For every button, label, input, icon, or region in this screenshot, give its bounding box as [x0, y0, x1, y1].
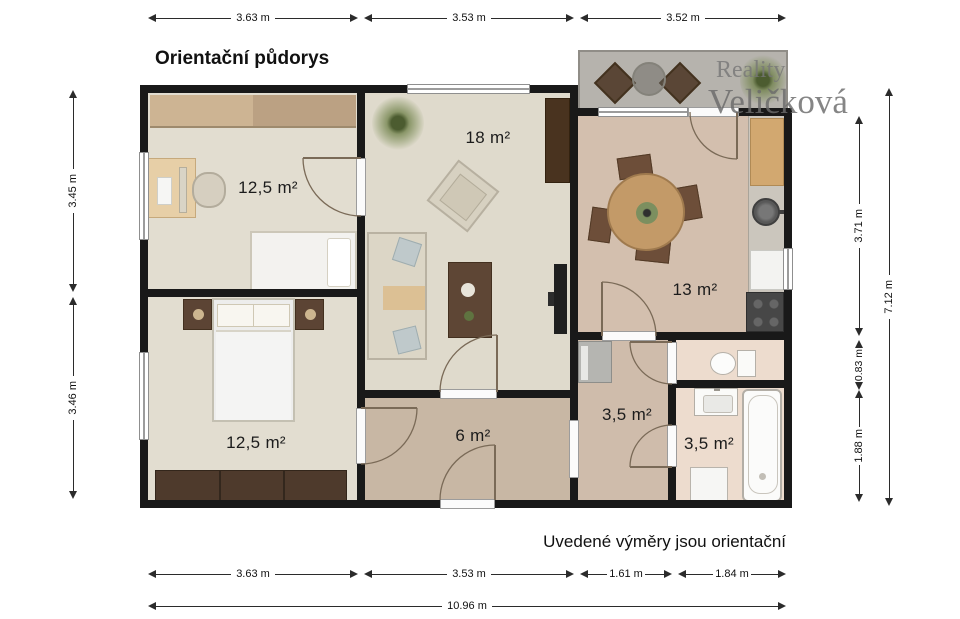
single-bed-pillow: [327, 238, 351, 287]
dim-line: [686, 574, 713, 575]
passage-hall-smallhall: [569, 420, 579, 478]
double-bed-pillow: [217, 304, 254, 327]
door-threshold-balcony: [688, 107, 739, 117]
dim-label: 3.52 m: [661, 12, 705, 24]
dim-line: [73, 305, 74, 376]
room-area-study: 12,5 m²: [238, 178, 298, 198]
dim-line: [73, 420, 74, 491]
room-area-kitchen: 13 m²: [673, 280, 718, 300]
balcony-table: [632, 62, 666, 96]
dim-arrow: [855, 382, 863, 390]
dim-line: [156, 18, 231, 19]
bathroom-cabinet: [690, 467, 728, 501]
sofa-pillow: [392, 325, 421, 354]
dim-arrow: [69, 90, 77, 98]
door-threshold-wc: [667, 342, 677, 384]
hallway-floor: [365, 398, 570, 500]
dim-line: [491, 574, 566, 575]
kitchen-appliance: [750, 250, 784, 290]
wardrobe-divider: [283, 471, 285, 501]
dim-right-1: 3.71 m: [852, 116, 866, 336]
dim-bottom-3: 1.61 m: [580, 567, 672, 581]
wall-kitchen-living: [570, 116, 578, 340]
dim-line: [275, 18, 350, 19]
dim-label: 3.45 m: [67, 169, 79, 213]
toilet-tank: [737, 350, 756, 377]
lamp-icon: [305, 309, 316, 320]
dim-arrow: [580, 14, 588, 22]
dim-label: 7.12 m: [883, 275, 895, 319]
toilet: [710, 352, 736, 375]
window-kitchen: [783, 248, 793, 290]
kitchen-tall-cabinet: [750, 118, 784, 186]
balcony-plant-icon: [740, 54, 786, 106]
dim-arrow: [350, 570, 358, 578]
dim-label: 1.84 m: [713, 568, 751, 580]
dim-arrow: [855, 494, 863, 502]
dim-arrow: [148, 602, 156, 610]
floor-plan-page: 12,5 m² 18 m² 13 m² 12,5 m² 6 m² 3,5 m² …: [0, 0, 960, 619]
dim-line: [705, 18, 778, 19]
sofa: [367, 232, 427, 360]
dim-arrow: [855, 390, 863, 398]
dim-line: [73, 213, 74, 284]
wall-join-living-kitchen: [570, 85, 578, 116]
tv: [554, 264, 567, 334]
dim-arrow: [148, 570, 156, 578]
dim-line: [492, 606, 778, 607]
window-living: [407, 84, 530, 94]
dim-right-total: 7.12 m: [882, 88, 896, 506]
room-area-hall: 6 m²: [455, 426, 490, 446]
window-balcony: [598, 107, 688, 117]
sink-bowl: [703, 395, 733, 413]
dim-top-2: 3.53 m: [364, 11, 574, 25]
dim-arrow: [885, 88, 893, 96]
dim-arrow: [364, 570, 372, 578]
wall-study-bedroom: [140, 289, 365, 297]
coffee-table: [448, 262, 492, 338]
dim-arrow: [69, 284, 77, 292]
room-area-living: 18 m²: [466, 128, 511, 148]
dim-bottom-total: 10.96 m: [148, 599, 786, 613]
dim-line: [372, 574, 447, 575]
dim-line: [588, 18, 661, 19]
dim-label: 3.53 m: [447, 568, 491, 580]
dim-arrow: [148, 14, 156, 22]
window-bedroom: [139, 352, 149, 440]
dim-arrow: [885, 498, 893, 506]
double-bed-pillow: [253, 304, 290, 327]
table-centerpiece-icon: [636, 202, 658, 224]
disclaimer-note: Uvedené výměry jsou orientační: [430, 532, 786, 552]
dim-line: [751, 574, 778, 575]
lamp-icon: [193, 309, 204, 320]
dim-arrow: [855, 116, 863, 124]
dim-arrow: [364, 14, 372, 22]
washing-machine: [578, 341, 612, 383]
dim-line: [275, 574, 350, 575]
bathroom-sink: [694, 388, 738, 416]
dim-line: [889, 96, 890, 275]
study-wardrobe: [150, 95, 356, 128]
armchair-cushion: [439, 174, 487, 222]
dim-arrow: [855, 340, 863, 348]
room-area-bedroom: 12,5 m²: [226, 433, 286, 453]
dim-line: [73, 98, 74, 169]
dim-label: 1.88 m: [853, 427, 865, 465]
room-area-small-hall: 3,5 m²: [602, 405, 652, 425]
dim-arrow: [855, 328, 863, 336]
dim-line: [156, 574, 231, 575]
sofa-throw: [383, 286, 425, 310]
dim-line: [645, 574, 664, 575]
dim-label: 10.96 m: [442, 600, 492, 612]
dim-line: [859, 465, 860, 494]
dim-arrow: [69, 491, 77, 499]
dim-arrow: [566, 14, 574, 22]
sideboard: [545, 98, 570, 183]
coffee-table-plant-icon: [464, 311, 474, 321]
dim-top-3: 3.52 m: [580, 11, 786, 25]
wall-wc-bath: [668, 380, 792, 388]
room-area-bathroom: 3,5 m²: [684, 434, 734, 454]
dim-bottom-2: 3.53 m: [364, 567, 574, 581]
bathtub: [742, 389, 782, 502]
dining-table: [607, 173, 685, 251]
dim-line: [859, 124, 860, 204]
dim-label: 3.46 m: [67, 376, 79, 420]
desk-papers: [157, 177, 172, 205]
living-plant-icon: [372, 96, 424, 150]
desk-chair: [192, 172, 226, 208]
dim-bottom-4: 1.84 m: [678, 567, 786, 581]
door-threshold-kitchen: [602, 331, 656, 341]
dim-top-1: 3.63 m: [148, 11, 358, 25]
dim-line: [372, 18, 447, 19]
stove: [746, 292, 784, 332]
dim-line: [889, 319, 890, 498]
washing-machine-door: [581, 346, 588, 380]
wardrobe-divider: [219, 471, 221, 501]
nightstand: [183, 299, 212, 330]
dim-line: [491, 18, 566, 19]
tv-stand: [548, 292, 554, 306]
dim-label: 3.53 m: [447, 12, 491, 24]
double-bed: [212, 298, 295, 422]
door-threshold-living-hall: [440, 389, 497, 399]
dim-arrow: [664, 570, 672, 578]
dim-arrow: [69, 297, 77, 305]
dim-label: 3.63 m: [231, 568, 275, 580]
dim-left-1: 3.45 m: [66, 90, 80, 292]
dim-label: 0.83 m: [853, 348, 865, 382]
door-threshold-bedroom: [356, 408, 366, 464]
desk: [148, 158, 196, 218]
drain-icon: [759, 473, 766, 480]
desk-monitor: [179, 167, 187, 213]
door-threshold-study: [356, 158, 366, 216]
dim-arrow: [566, 570, 574, 578]
page-title: Orientační půdorys: [155, 48, 329, 70]
dim-label: 3.63 m: [231, 12, 275, 24]
single-bed: [250, 231, 357, 294]
dim-label: 3.71 m: [853, 204, 865, 248]
kitchen-sink: [752, 198, 780, 226]
wall-right: [784, 108, 792, 508]
dim-arrow: [778, 570, 786, 578]
dim-right-3: 1.88 m: [852, 390, 866, 502]
nightstand: [295, 299, 324, 330]
coffee-table-plate: [461, 283, 475, 297]
dim-bottom-1: 3.63 m: [148, 567, 358, 581]
dim-right-2: 0.83 m: [852, 340, 866, 386]
dim-arrow: [778, 602, 786, 610]
dim-line: [588, 574, 607, 575]
dim-line: [156, 606, 442, 607]
dim-arrow: [350, 14, 358, 22]
bedroom-wardrobe: [155, 470, 347, 502]
dim-arrow: [678, 570, 686, 578]
dim-arrow: [580, 570, 588, 578]
dim-line: [859, 248, 860, 328]
double-bed-duvet: [216, 330, 291, 420]
window-study: [139, 152, 149, 240]
sofa-pillow: [392, 237, 422, 267]
door-threshold-bath: [667, 425, 677, 467]
dim-arrow: [778, 14, 786, 22]
dim-label: 1.61 m: [607, 568, 645, 580]
dim-line: [859, 398, 860, 427]
door-threshold-entry: [440, 499, 495, 509]
dim-left-2: 3.46 m: [66, 297, 80, 499]
